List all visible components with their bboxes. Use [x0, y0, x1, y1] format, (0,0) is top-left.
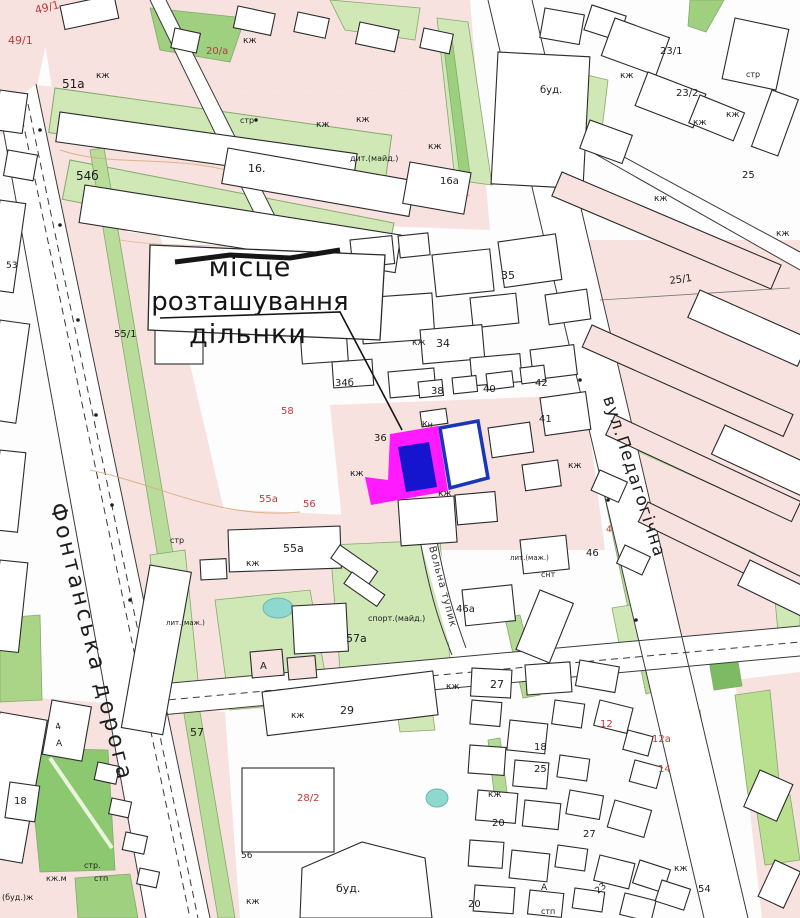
- map-label: 46а: [456, 604, 475, 615]
- map-label: 23/2: [676, 88, 698, 99]
- map-label: 57: [190, 726, 204, 739]
- map-label: стп: [541, 907, 555, 916]
- map-label: 58: [281, 406, 294, 417]
- annotation-line-1: місце: [209, 252, 292, 283]
- map-label: 25: [742, 170, 755, 181]
- map-label: кж: [438, 489, 452, 499]
- map-label: А: [260, 661, 267, 672]
- map-label: (буд.)ж: [2, 893, 33, 902]
- map-label: буд.: [336, 882, 360, 895]
- map-label: кж: [350, 469, 364, 479]
- map-label: дит.(майд.): [350, 154, 398, 163]
- map-label: 18: [14, 796, 27, 807]
- map-label: 34б: [335, 378, 354, 389]
- map-label: 16.: [248, 162, 266, 175]
- map-label: 53: [6, 261, 17, 271]
- map-label: кж: [726, 110, 740, 120]
- annotation-line-3: дільнки: [189, 319, 307, 350]
- map-label: кж: [776, 229, 790, 239]
- map-label: лит.(маж.): [166, 619, 205, 627]
- map-label: лит.(маж.): [510, 554, 549, 562]
- map-label: 20/а: [206, 46, 228, 57]
- map-label: стр: [170, 536, 184, 545]
- map-label: кж: [446, 682, 460, 692]
- map-label: кж: [693, 118, 707, 128]
- map-label: буд.: [540, 85, 562, 96]
- map-label: кж: [291, 711, 305, 721]
- map-label: 27: [490, 678, 504, 691]
- map-label: 56: [303, 499, 316, 510]
- map-label: кж: [246, 897, 260, 907]
- map-label: кж: [316, 120, 330, 130]
- map-label: 54б: [76, 169, 99, 183]
- map-label: 29: [340, 704, 354, 717]
- map-label: 56: [241, 851, 253, 861]
- map-label: 16а: [440, 176, 459, 187]
- map-label: 51а: [62, 77, 85, 91]
- map-label: кж: [568, 461, 582, 471]
- map-label: 23/1: [660, 46, 682, 57]
- map-label: 20: [492, 818, 505, 829]
- map-label: 54: [698, 884, 711, 895]
- map-canvas: місце розташування дільнки Фонтанська до…: [0, 0, 800, 918]
- adjacent-parcel-outline: [440, 421, 488, 488]
- map-label: 57а: [346, 632, 367, 645]
- map-label: 46: [586, 548, 599, 559]
- map-label: стр: [746, 70, 760, 79]
- map-label: 28/2: [297, 793, 319, 804]
- map-label: кж: [356, 115, 370, 125]
- map-label: 18: [534, 742, 547, 753]
- map-label: 25: [534, 764, 547, 775]
- map-label: стп: [94, 874, 108, 883]
- map-label: 49/1: [8, 34, 33, 47]
- map-label: кж: [412, 338, 426, 348]
- map-label: 12: [600, 719, 613, 730]
- map-label: А: [56, 739, 63, 749]
- map-label: 55а: [259, 494, 278, 505]
- map-label: кж: [246, 559, 260, 569]
- map-label: стр.: [84, 861, 101, 870]
- map-label: 55/1: [114, 329, 136, 340]
- map-label: 12а: [652, 734, 671, 745]
- map-label: 4: [606, 525, 612, 535]
- map-label: кж.м: [46, 874, 67, 883]
- map-label: кж: [674, 864, 688, 874]
- map-label: кж: [654, 194, 668, 204]
- map-label: 41: [539, 414, 552, 425]
- map-label: 36: [374, 433, 387, 444]
- map-label: 34: [436, 337, 450, 350]
- map-label: 27: [583, 829, 596, 840]
- map-label: Кн: [422, 420, 433, 429]
- map-label: кж: [96, 71, 110, 81]
- map-label: 20: [468, 899, 481, 910]
- map-label: 35: [501, 269, 515, 282]
- map-label: стр: [240, 116, 254, 125]
- map-label: 38: [431, 386, 444, 397]
- map-label: кж: [428, 142, 442, 152]
- map-label: 40: [483, 384, 496, 395]
- map-label: кж: [243, 36, 257, 46]
- map-label: А: [541, 883, 548, 893]
- map-label: спорт.(майд.): [368, 614, 425, 623]
- map-label: 14: [658, 764, 671, 775]
- map-label: 42: [535, 378, 548, 389]
- map-label: снт: [541, 570, 556, 579]
- map-label: кж: [620, 71, 634, 81]
- map-label: кж: [488, 790, 502, 800]
- cadastral-map: місце розташування дільнки Фонтанська до…: [0, 0, 800, 918]
- map-label: 55а: [283, 542, 304, 555]
